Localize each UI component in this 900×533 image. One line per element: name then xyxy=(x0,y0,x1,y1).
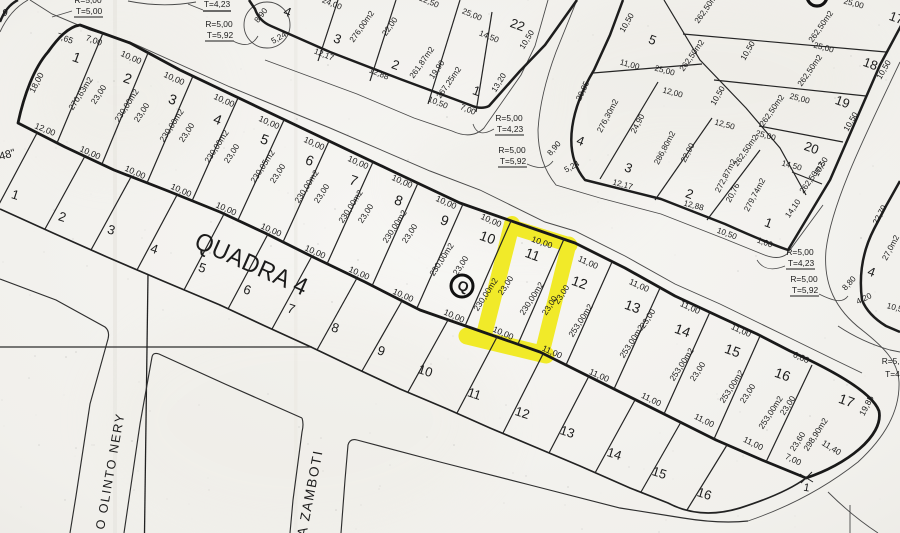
svg-text:R=5,00: R=5,00 xyxy=(498,145,526,155)
svg-text:T=4,2: T=4,2 xyxy=(885,369,900,379)
svg-text:T=5,00: T=5,00 xyxy=(76,6,103,16)
svg-text:T=4,23: T=4,23 xyxy=(788,258,815,268)
svg-text:R=5,0: R=5,0 xyxy=(882,356,900,366)
svg-text:T=5,92: T=5,92 xyxy=(792,285,819,295)
svg-text:T=4,23: T=4,23 xyxy=(497,124,524,134)
svg-text:R=5,00: R=5,00 xyxy=(74,0,102,5)
svg-text:R=5,00: R=5,00 xyxy=(790,274,818,284)
svg-text:T=5,92: T=5,92 xyxy=(207,30,234,40)
svg-text:R=5,00: R=5,00 xyxy=(495,113,523,123)
svg-text:T=4,23: T=4,23 xyxy=(204,0,231,9)
svg-text:R=5,00: R=5,00 xyxy=(786,247,814,257)
svg-text:R=5,00: R=5,00 xyxy=(205,19,233,29)
svg-text:T=5,92: T=5,92 xyxy=(500,156,527,166)
